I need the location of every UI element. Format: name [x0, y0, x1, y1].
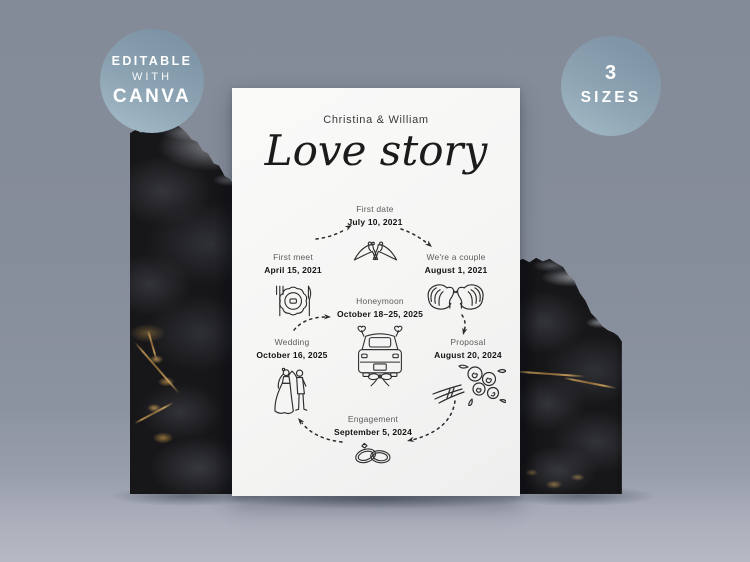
- poster-title: Love story: [232, 124, 520, 178]
- timeline-event-couple: We're a couple August 1, 2021: [425, 252, 488, 313]
- bouquet-icon: [430, 362, 506, 406]
- timeline-label: Honeymoon: [337, 296, 423, 306]
- swans-icon: [425, 283, 488, 313]
- arrow-couple-to-proposal: [462, 315, 465, 331]
- high-heels-icon: [347, 237, 402, 272]
- marble-stone-left: [130, 120, 240, 494]
- badge-text: WITH: [132, 71, 172, 83]
- arrow-first-meet-to-first-date: [316, 229, 346, 239]
- gold-vein: [516, 370, 585, 377]
- badge-text: EDITABLE: [112, 54, 193, 68]
- timeline-date: August 1, 2021: [425, 265, 488, 275]
- timeline-date: September 5, 2024: [334, 427, 412, 437]
- timeline-date: April 15, 2021: [264, 265, 322, 275]
- love-story-poster: Christina & William Love story: [232, 88, 520, 496]
- three-sizes-badge: 3 SIZES: [561, 36, 661, 136]
- gold-vein: [134, 341, 180, 394]
- timeline-event-first-date: First date July 10, 2021: [347, 204, 402, 272]
- timeline-date: October 16, 2025: [256, 350, 327, 360]
- timeline-event-engagement: Engagement September 5, 2024: [334, 414, 412, 467]
- arrow-first-date-to-couple: [401, 229, 428, 244]
- badge-text: 3: [605, 62, 617, 85]
- badge-text: SIZES: [581, 89, 642, 107]
- timeline-event-wedding: Wedding October 16, 2025: [256, 337, 327, 415]
- timeline-label: Proposal: [430, 337, 506, 347]
- mockup-scene: Christina & William Love story: [0, 0, 750, 562]
- marble-stone-right: [516, 256, 628, 494]
- timeline-event-proposal: Proposal August 20, 2024: [430, 337, 506, 406]
- timeline-event-honeymoon: Honeymoon October 18–25, 2025: [337, 296, 423, 388]
- timeline-date: August 20, 2024: [430, 350, 506, 360]
- gold-vein: [134, 401, 174, 423]
- arrow-proposal-to-engagement: [412, 401, 455, 440]
- timeline-label: First meet: [264, 252, 322, 262]
- bride-groom-icon: [256, 365, 327, 415]
- timeline-date: July 10, 2021: [347, 217, 402, 227]
- timeline-label: We're a couple: [425, 252, 488, 262]
- wedding-car-icon: [337, 322, 423, 388]
- timeline-label: First date: [347, 204, 402, 214]
- timeline-label: Wedding: [256, 337, 327, 347]
- dinner-plate-icon: [264, 280, 322, 322]
- editable-with-canva-badge: EDITABLE WITH CANVA: [100, 29, 204, 133]
- wedding-rings-icon: [334, 440, 412, 467]
- timeline-date: October 18–25, 2025: [337, 309, 423, 319]
- timeline-label: Engagement: [334, 414, 412, 424]
- timeline-event-first-meet: First meet April 15, 2021: [264, 252, 322, 322]
- gold-vein: [563, 377, 616, 389]
- badge-text: CANVA: [113, 86, 191, 108]
